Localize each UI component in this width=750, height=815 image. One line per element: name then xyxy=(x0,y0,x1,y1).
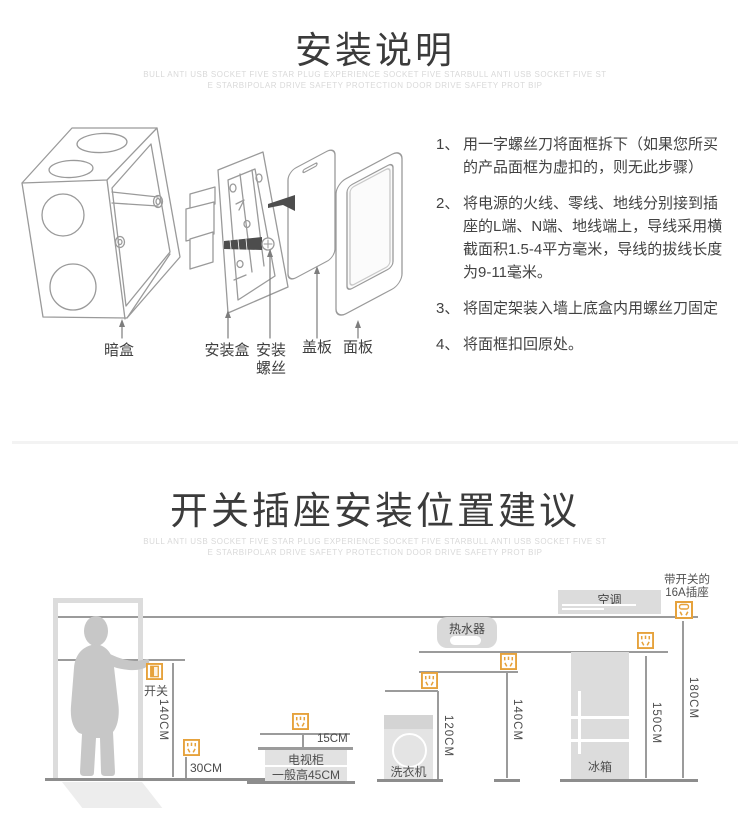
part-label-mounting-frame: 安装盒 xyxy=(201,342,253,360)
socket-icon-heater xyxy=(500,653,517,670)
exploded-parts-diagram xyxy=(0,104,440,344)
socket-icon-tv xyxy=(292,713,309,730)
step-text: 将面框扣回原处。 xyxy=(463,333,725,356)
dimension-label-140cm-right: 140CM xyxy=(511,699,523,741)
dimension-label-15cm: 15CM xyxy=(317,733,348,745)
part-label-front-panel: 面板 xyxy=(341,339,375,357)
section2-title: 开关插座安装位置建议 xyxy=(0,480,750,535)
step-1: 1、 用一字螺丝刀将面框拆下（如果您所买的产品面框为虚扣的，则无此步骤） xyxy=(436,133,736,179)
step-2: 2、 将电源的火线、零线、地线分别接到插座的L端、N端、地线端上，导线采用横截面… xyxy=(436,192,736,284)
water-heater-slot xyxy=(450,636,481,645)
dimension-line-180cm xyxy=(682,621,684,778)
step-3: 3、 将固定架装入墙上底盒内用螺丝刀固定 xyxy=(436,297,736,320)
dimension-tick-15cm xyxy=(302,735,304,747)
socket-icon-30cm xyxy=(183,739,200,756)
subtitle-line2: E STARBIPOLAR DRIVE SAFETY PROTECTION DO… xyxy=(0,81,750,90)
fridge-door-split2 xyxy=(571,739,629,742)
height-line-150cm xyxy=(419,651,668,653)
floor-line-left xyxy=(45,778,280,781)
part-label-cover-plate: 盖板 xyxy=(300,339,334,357)
step-text: 将电源的火线、零线、地线分别接到插座的L端、N端、地线端上，导线采用横截面积1.… xyxy=(463,192,725,284)
step-4: 4、 将面框扣回原处。 xyxy=(436,333,736,356)
switch-icon xyxy=(146,663,163,680)
step-number: 2、 xyxy=(436,192,463,284)
dimension-line-30cm xyxy=(185,757,187,778)
dimension-label-30cm: 30CM xyxy=(190,761,222,775)
washer-control-panel xyxy=(384,715,433,729)
step-text: 将固定架装入墙上底盒内用螺丝刀固定 xyxy=(463,297,725,320)
part-label-screw-2: 螺丝 xyxy=(255,360,287,378)
door-frame-top xyxy=(53,598,143,603)
mounting-frame-drawing xyxy=(186,152,288,313)
section2-subtitle-line1: BULL ANTI USB SOCKET FIVE STAR PLUG EXPE… xyxy=(0,537,750,546)
dimension-line-140cm-right xyxy=(506,672,508,778)
page-title: 安装说明 xyxy=(0,20,750,74)
installation-steps: 1、 用一字螺丝刀将面框拆下（如果您所买的产品面框为虚扣的，则无此步骤） 2、 … xyxy=(436,133,736,369)
floor-line-right xyxy=(560,779,698,782)
section2-subtitle-line2: E STARBIPOLAR DRIVE SAFETY PROTECTION DO… xyxy=(0,548,750,557)
dimension-label-140cm-left: 140CM xyxy=(157,699,169,741)
dimension-label-150cm: 150CM xyxy=(650,702,662,744)
ac-socket-label-line1: 带开关的 xyxy=(648,574,726,587)
water-heater-label: 热水器 xyxy=(437,620,497,637)
part-label-screw-1: 安装 xyxy=(255,342,287,360)
floor-line-heater xyxy=(494,779,520,782)
dimension-line-140cm-left xyxy=(172,663,174,777)
wall-box-drawing xyxy=(22,128,180,319)
step-number: 1、 xyxy=(436,133,463,179)
ac-vent-line2 xyxy=(562,608,604,610)
cover-plate-drawing xyxy=(288,147,335,282)
washer-label: 洗衣机 xyxy=(384,763,433,780)
height-line-120cm xyxy=(385,690,438,692)
step-text: 用一字螺丝刀将面框拆下（如果您所买的产品面框为虚扣的，则无此步骤） xyxy=(463,133,725,179)
socket-icon-fridge xyxy=(637,632,654,649)
door-shadow xyxy=(62,782,162,808)
subtitle-line1: BULL ANTI USB SOCKET FIVE STAR PLUG EXPE… xyxy=(0,70,750,79)
dimension-line-120cm xyxy=(437,691,439,779)
ac-socket-label-line2: 16A插座 xyxy=(648,587,726,600)
step-number: 4、 xyxy=(436,333,463,356)
ac-vent-line1 xyxy=(562,604,636,606)
section-divider xyxy=(12,441,738,444)
dimension-line-150cm xyxy=(645,656,647,778)
dimension-label-180cm: 180CM xyxy=(687,677,699,719)
switched-16a-socket-icon xyxy=(675,601,693,619)
socket-icon-washer xyxy=(421,672,438,689)
fridge-handle-line xyxy=(578,691,581,754)
part-label-wall-box: 暗盒 xyxy=(101,342,137,360)
installation-instruction-page: 安装说明 BULL ANTI USB SOCKET FIVE STAR PLUG… xyxy=(0,0,750,815)
switch-label: 开关 xyxy=(141,682,171,699)
dimension-label-120cm: 120CM xyxy=(442,715,454,757)
step-number: 3、 xyxy=(436,297,463,320)
person-silhouette xyxy=(55,612,155,778)
floor-line-tv xyxy=(247,781,355,784)
fridge-door-split1 xyxy=(571,716,629,719)
floor-line-washer xyxy=(377,779,443,782)
fridge-label: 冰箱 xyxy=(571,758,629,775)
front-panel-drawing xyxy=(336,149,402,319)
